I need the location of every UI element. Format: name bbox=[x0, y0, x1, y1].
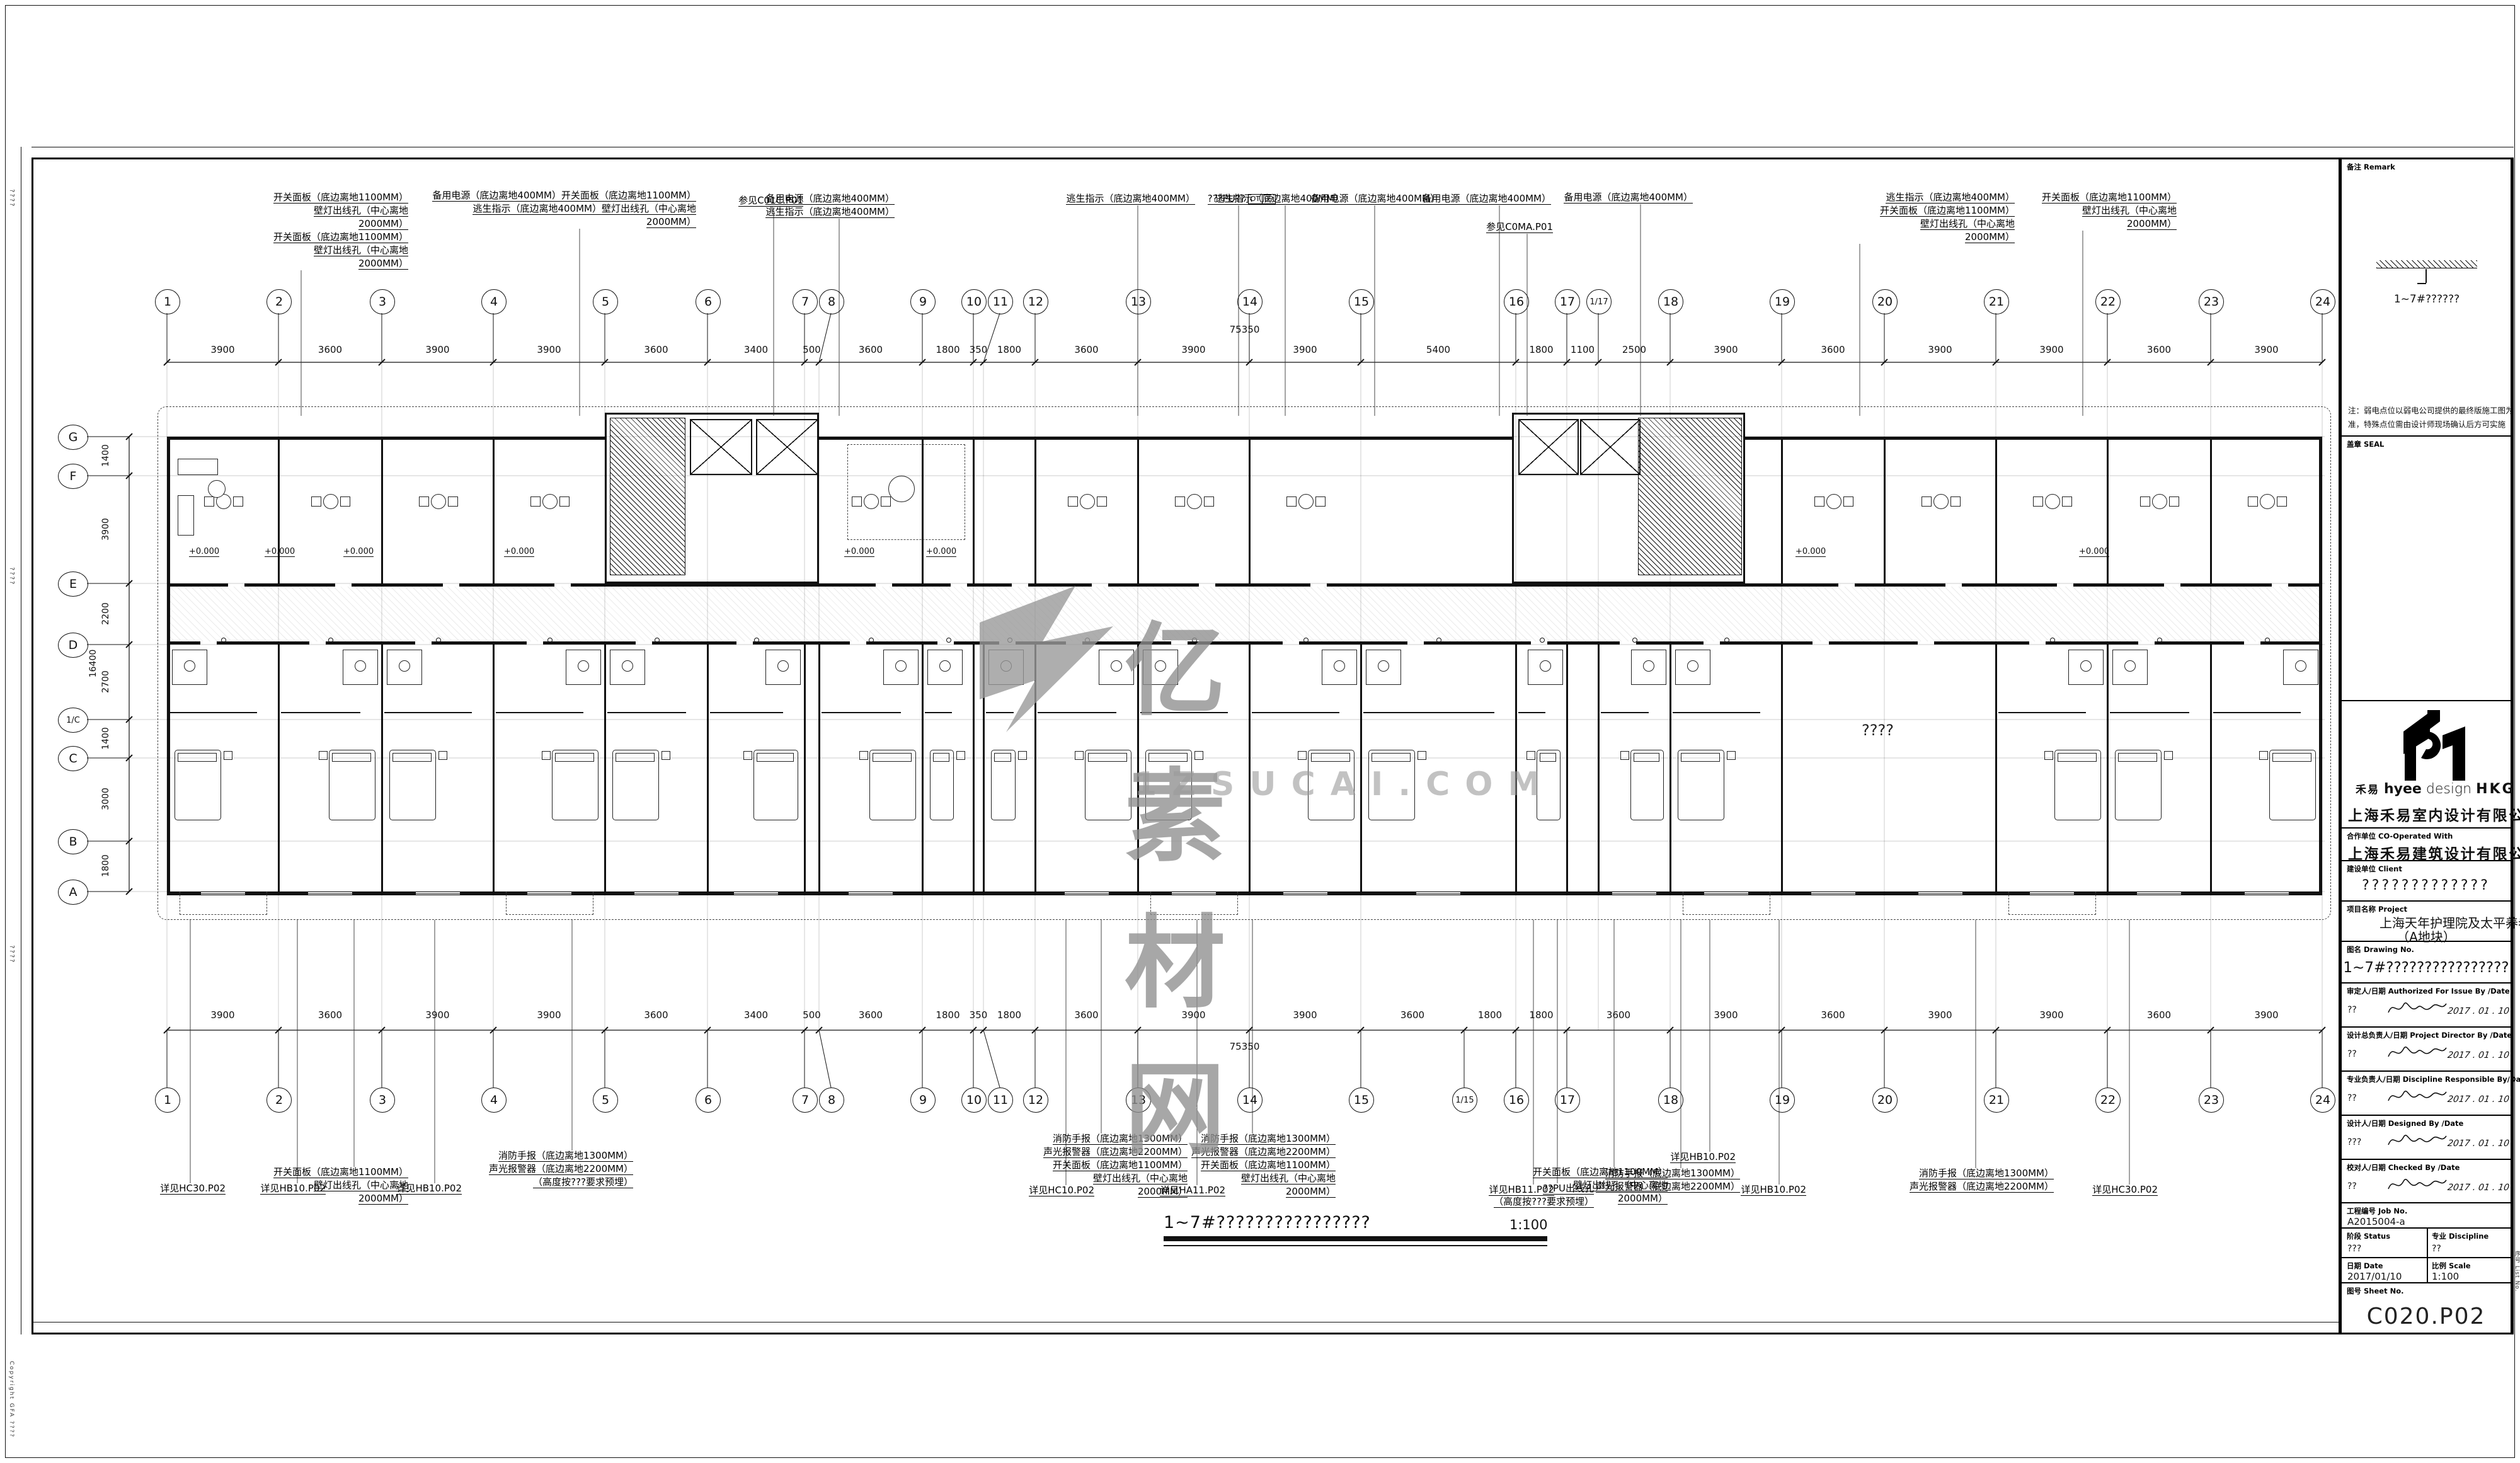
grid-bubble-top: 6 bbox=[696, 289, 721, 314]
brand-cn: 禾易 bbox=[2356, 784, 2380, 796]
wall-segment bbox=[1035, 641, 1066, 645]
pillow-symbol bbox=[616, 753, 655, 762]
perimeter-wall-bottom bbox=[167, 892, 2322, 895]
nightstand-symbol bbox=[319, 751, 328, 760]
callout: 详见HC30.P02 bbox=[1805, 1183, 2158, 1196]
bathroom-wall bbox=[925, 712, 952, 713]
unit-partition-wall bbox=[278, 645, 280, 892]
callout-line: 详见HB10.P02 bbox=[1383, 1150, 1736, 1164]
device-symbol bbox=[869, 638, 874, 643]
chair-symbol bbox=[1204, 496, 1214, 507]
grid-bubble-top: 24 bbox=[2310, 289, 2335, 314]
drawing-title-text: 1~7#???????????????? bbox=[1164, 1213, 1371, 1232]
dimension-label: 2700 bbox=[101, 653, 111, 710]
wall-segment bbox=[1720, 641, 1782, 645]
status-discipline-divider bbox=[2427, 1229, 2428, 1257]
chair-symbol bbox=[2033, 496, 2043, 507]
brand-section: 禾易 hyee design HKG 上海禾易室内设计有限公司 bbox=[2342, 700, 2511, 827]
chair-symbol bbox=[1097, 496, 1107, 507]
remark-note-line2: 准，特殊点位需由设计师现场确认后方可实施 bbox=[2348, 418, 2506, 430]
overall-dimension-left: 16400 bbox=[88, 626, 98, 701]
unit-partition-wall bbox=[1598, 645, 1600, 892]
remark-symbol-label: 1~7#?????? bbox=[2367, 293, 2487, 306]
chair-symbol bbox=[2140, 496, 2150, 507]
grid-bubble-left: F bbox=[58, 464, 88, 489]
bed-symbol bbox=[552, 750, 598, 820]
wall-segment bbox=[2107, 641, 2138, 645]
dimension-label: 3900 bbox=[1698, 344, 1755, 355]
bed-symbol bbox=[2269, 750, 2316, 820]
pillow-symbol bbox=[178, 753, 217, 762]
chair-symbol bbox=[340, 496, 350, 507]
dimension-label: 5400 bbox=[1410, 344, 1467, 355]
grid-bubble-bottom: 19 bbox=[1770, 1087, 1795, 1113]
toilet-symbol bbox=[2295, 660, 2306, 672]
grid-bubble-left: G bbox=[58, 425, 88, 450]
level-marker: +0.000 bbox=[265, 547, 295, 557]
unit-partition-wall bbox=[1566, 645, 1568, 892]
wall-segment bbox=[1516, 583, 1567, 587]
callout: 开关面板（底边离地1100MM）壁灯出线孔（中心离地2000MM） bbox=[1824, 191, 2177, 231]
bathroom-symbol bbox=[988, 650, 1024, 685]
bathroom-wall bbox=[169, 712, 257, 713]
toilet-symbol bbox=[777, 660, 789, 672]
unit-partition-wall bbox=[604, 645, 606, 892]
dimension-label: 3600 bbox=[302, 1009, 358, 1021]
brand-en: hyee bbox=[2384, 781, 2422, 797]
wall-segment bbox=[1829, 641, 1884, 645]
wall-segment bbox=[2211, 583, 2272, 587]
pillow-symbol bbox=[2118, 753, 2157, 762]
wall-segment bbox=[571, 583, 605, 587]
brand-suffix: HKG bbox=[2476, 781, 2516, 797]
signer-label: 设计总负责人/日期 Project Director By /Date bbox=[2347, 1030, 2512, 1040]
stair-hatch bbox=[610, 418, 685, 575]
nightstand-symbol bbox=[1018, 751, 1027, 760]
unit-partition-wall bbox=[1249, 645, 1251, 892]
bathroom-symbol bbox=[1099, 650, 1134, 685]
device-symbol bbox=[547, 638, 553, 643]
unit-partition-wall bbox=[983, 645, 985, 892]
unit-partition-wall bbox=[2210, 645, 2212, 892]
pillow-symbol bbox=[994, 753, 1011, 762]
grid-bubble-bottom: 6 bbox=[696, 1087, 721, 1113]
bathroom-wall bbox=[1140, 712, 1228, 713]
nightstand-symbol bbox=[661, 751, 670, 760]
dimension-label: 3900 bbox=[1277, 344, 1334, 355]
remark-label: 备注 Remark bbox=[2347, 162, 2395, 172]
device-symbol bbox=[328, 638, 333, 643]
grid-bubble-top: 19 bbox=[1770, 289, 1795, 314]
device-symbol bbox=[2157, 638, 2162, 643]
callout-line: 声光报警器（底边离地2200MM） bbox=[983, 1145, 1336, 1159]
bathroom-symbol bbox=[610, 650, 645, 685]
sofa-symbol bbox=[178, 459, 218, 475]
toilet-symbol bbox=[1334, 660, 1345, 672]
round-table-symbol bbox=[888, 476, 915, 502]
grid-bubble-left: B bbox=[58, 829, 88, 854]
wall-segment bbox=[1598, 641, 1620, 645]
grid-bubble-top: 4 bbox=[481, 289, 507, 314]
elevator-shaft bbox=[756, 419, 818, 475]
wall-segment bbox=[352, 583, 382, 587]
toilet-symbol bbox=[355, 660, 366, 672]
dimension-label: 3900 bbox=[2238, 344, 2295, 355]
unit-partition-wall bbox=[1249, 437, 1251, 583]
wall-segment bbox=[543, 641, 605, 645]
signer-label: 审定人/日期 Authorized For Issue By /Date bbox=[2347, 986, 2510, 996]
bed-symbol bbox=[930, 750, 954, 820]
signature-icon bbox=[2386, 1086, 2449, 1108]
frame-bottom-thin-line bbox=[31, 1322, 2514, 1322]
table-symbol bbox=[208, 480, 226, 498]
wall-segment bbox=[1108, 583, 1138, 587]
chair-symbol bbox=[1068, 496, 1078, 507]
dimension-label: 1800 bbox=[101, 837, 111, 894]
wall-segment bbox=[1327, 583, 1361, 587]
sheet-no-section: 图号 Sheet No. C020.P02 bbox=[2342, 1282, 2511, 1336]
grid-bubble-top: 14 bbox=[1237, 289, 1263, 314]
title-underline-thin bbox=[1164, 1245, 1547, 1246]
window-midline bbox=[1283, 893, 1327, 894]
bed-symbol bbox=[1368, 750, 1415, 820]
wall-segment bbox=[983, 641, 999, 645]
pillow-symbol bbox=[873, 753, 912, 762]
chair-symbol bbox=[2248, 496, 2258, 507]
wall-segment bbox=[459, 583, 493, 587]
toilet-symbol bbox=[895, 660, 907, 672]
bathroom-wall bbox=[1363, 712, 1494, 713]
callout-line: 消防手报（底边离地1300MM） bbox=[280, 1149, 633, 1162]
grid-bubble-bottom: 13 bbox=[1126, 1087, 1151, 1113]
job-no-label: 工程编号 Job No. bbox=[2347, 1206, 2407, 1216]
wall-segment bbox=[2046, 641, 2107, 645]
drawing-title-scale: 1:100 bbox=[1509, 1217, 1548, 1232]
wall-segment bbox=[2211, 641, 2244, 645]
table-symbol bbox=[2152, 494, 2167, 509]
signer-row: 设计总负责人/日期 Project Director By /Date??201… bbox=[2342, 1026, 2511, 1070]
scale-value: 1:100 bbox=[2432, 1271, 2459, 1282]
remark-symbol-stem bbox=[2425, 269, 2427, 283]
window-symbol bbox=[2137, 892, 2181, 895]
bed-symbol bbox=[991, 750, 1016, 820]
grid-bubble-bottom: 12 bbox=[1023, 1087, 1048, 1113]
list-no-label: 序号 List No. bbox=[2513, 1251, 2520, 1292]
wall-segment bbox=[1249, 641, 1283, 645]
window-symbol bbox=[634, 892, 679, 895]
dimension-label: 3600 bbox=[842, 344, 899, 355]
bathroom-wall bbox=[607, 712, 686, 713]
grid-bubble-top: 12 bbox=[1023, 289, 1048, 314]
unit-partition-wall bbox=[1137, 437, 1139, 583]
device-symbol bbox=[1085, 638, 1090, 643]
signature-icon bbox=[2386, 1130, 2449, 1152]
nightstand-symbol bbox=[1194, 751, 1203, 760]
window-symbol bbox=[308, 892, 352, 895]
wall-segment bbox=[1598, 583, 1670, 587]
callout: 备用电源（底边离地400MM） bbox=[1340, 191, 1693, 204]
wall-segment bbox=[1516, 641, 1531, 645]
level-marker: +0.000 bbox=[189, 547, 219, 557]
wall-segment bbox=[2073, 583, 2107, 587]
grid-bubble-left: 1/C bbox=[58, 708, 88, 733]
brand-mid: design bbox=[2426, 781, 2471, 797]
balcony-outline bbox=[1150, 892, 1238, 915]
window-symbol bbox=[1065, 892, 1109, 895]
grid-bubble-bottom: 1/15 bbox=[1452, 1087, 1477, 1113]
toilet-symbol bbox=[1643, 660, 1654, 672]
wall-segment bbox=[1138, 641, 1171, 645]
grid-bubble-bottom: 22 bbox=[2095, 1087, 2121, 1113]
discipline-label: 专业 Discipline bbox=[2432, 1231, 2488, 1241]
window-midline bbox=[1918, 893, 1962, 894]
dimension-label: 3900 bbox=[2024, 1009, 2080, 1021]
bathroom-symbol bbox=[172, 650, 207, 685]
wall-segment bbox=[1670, 583, 1782, 587]
chair-symbol bbox=[311, 496, 321, 507]
bathroom-wall bbox=[986, 712, 1014, 713]
grid-bubble-top: 1/17 bbox=[1586, 289, 1612, 314]
device-symbol bbox=[655, 638, 660, 643]
dimension-label: 3600 bbox=[2131, 344, 2187, 355]
dimension-label: 3600 bbox=[842, 1009, 899, 1021]
pillow-symbol bbox=[1148, 753, 1188, 762]
pillow-symbol bbox=[555, 753, 594, 762]
grid-bubble-bottom: 2 bbox=[266, 1087, 292, 1113]
device-symbol bbox=[1724, 638, 1729, 643]
callout-line: 壁灯出线孔（中心离地 bbox=[1824, 204, 2177, 217]
dimension-label: 1400 bbox=[101, 427, 111, 484]
signer-name: ?? bbox=[2347, 1005, 2357, 1015]
elevator-shaft bbox=[690, 419, 752, 475]
dimension-label: 2200 bbox=[101, 585, 111, 642]
window-symbol bbox=[849, 892, 893, 895]
dimension-label: 3400 bbox=[728, 344, 784, 355]
dimension-label: 1400 bbox=[101, 710, 111, 767]
toilet-symbol bbox=[578, 660, 589, 672]
dimension-label: 3600 bbox=[628, 344, 685, 355]
chair-symbol bbox=[1921, 496, 1932, 507]
callout-line: 壁灯出线孔（中心离地 bbox=[55, 244, 408, 257]
dimension-label: 3900 bbox=[1912, 344, 1969, 355]
chair-symbol bbox=[2277, 496, 2287, 507]
unit-partition-wall bbox=[973, 437, 975, 583]
window-midline bbox=[1612, 893, 1656, 894]
pillow-symbol bbox=[332, 753, 371, 762]
dimension-label: 3600 bbox=[302, 344, 358, 355]
signer-label: 专业负责人/日期 Discipline Responsible By/Date bbox=[2347, 1074, 2520, 1084]
grid-bubble-top: 17 bbox=[1555, 289, 1580, 314]
wall-segment bbox=[819, 583, 876, 587]
unit-partition-wall bbox=[1034, 437, 1036, 583]
callout-line: 消防手报（底边离地1300MM） bbox=[1701, 1167, 2054, 1180]
toilet-symbol bbox=[184, 660, 195, 672]
window-midline bbox=[1065, 893, 1109, 894]
bathroom-symbol bbox=[1675, 650, 1710, 685]
dimension-label: 3900 bbox=[1277, 1009, 1334, 1021]
wall-segment bbox=[382, 583, 443, 587]
grid-bubble-top: 15 bbox=[1349, 289, 1374, 314]
window-midline bbox=[849, 893, 893, 894]
table-symbol bbox=[1933, 494, 1949, 509]
callout-line: 开关面板（底边离地1100MM） bbox=[983, 1159, 1336, 1172]
bed-symbol bbox=[1537, 750, 1561, 820]
dimension-label: 1800 bbox=[981, 1009, 1038, 1021]
window-symbol bbox=[734, 892, 778, 895]
nightstand-symbol bbox=[2259, 751, 2268, 760]
signer-date: 2017 . 01 . 10 bbox=[2447, 1050, 2510, 1060]
wall-segment bbox=[1361, 641, 1407, 645]
bed-symbol bbox=[2054, 750, 2101, 820]
sofa-symbol bbox=[178, 495, 194, 536]
chair-symbol bbox=[448, 496, 458, 507]
chair-symbol bbox=[1814, 496, 1824, 507]
callout-line: 消防手报（底边离地1300MM） bbox=[983, 1132, 1336, 1145]
unit-partition-wall bbox=[381, 645, 383, 892]
dimension-label: 2500 bbox=[1606, 344, 1663, 355]
room-label: ???? bbox=[1862, 721, 1894, 739]
wall-segment bbox=[605, 583, 707, 587]
table-symbol bbox=[323, 494, 338, 509]
window-midline bbox=[2137, 893, 2181, 894]
wall-segment bbox=[244, 583, 278, 587]
nightstand-symbol bbox=[2044, 751, 2053, 760]
pillow-symbol bbox=[757, 753, 794, 762]
bathroom-symbol bbox=[1528, 650, 1563, 685]
wall-segment bbox=[167, 583, 228, 587]
grid-bubble-left: C bbox=[58, 746, 88, 771]
remark-symbol-foot bbox=[2417, 283, 2426, 284]
overall-dimension-top: 75350 bbox=[1207, 324, 1283, 335]
unit-partition-wall bbox=[2107, 437, 2109, 583]
signer-label: 校对人/日期 Checked By /Date bbox=[2347, 1162, 2460, 1173]
nightstand-symbol bbox=[1620, 751, 1629, 760]
window-symbol bbox=[1416, 892, 1460, 895]
wall-segment bbox=[2180, 583, 2211, 587]
dimension-label: 3900 bbox=[195, 1009, 251, 1021]
dimension-label: 3900 bbox=[1698, 1009, 1755, 1021]
unit-partition-wall bbox=[278, 437, 280, 583]
window-midline bbox=[634, 893, 679, 894]
bathroom-symbol bbox=[1366, 650, 1401, 685]
window-midline bbox=[734, 893, 778, 894]
drawing-no-value: 1~7#???????????????? bbox=[2342, 960, 2511, 976]
remark-section: 备注 Remark 1~7#?????? 注：弱电点位以弱电公司提供的最终版施工… bbox=[2342, 159, 2511, 435]
remark-note-line1: 注：弱电点位以弱电公司提供的最终版施工图为 bbox=[2348, 404, 2514, 416]
dimension-label: 3900 bbox=[2024, 344, 2080, 355]
grid-bubble-bottom: 15 bbox=[1349, 1087, 1374, 1113]
toilet-symbol bbox=[622, 660, 633, 672]
dimension-label: 1800 bbox=[1513, 1009, 1570, 1021]
date-scale-row: 日期 Date 2017/01/10 比例 Scale 1:100 bbox=[2342, 1257, 2511, 1282]
bathroom-wall bbox=[2110, 712, 2189, 713]
bathroom-wall bbox=[1518, 712, 1545, 713]
unit-partition-wall bbox=[493, 645, 495, 892]
sheet-no-value: C020.P02 bbox=[2342, 1304, 2511, 1329]
device-symbol bbox=[1007, 638, 1012, 643]
dimension-label: 3600 bbox=[1805, 1009, 1862, 1021]
nightstand-symbol bbox=[1526, 751, 1535, 760]
bed-symbol bbox=[753, 750, 798, 820]
wall-segment bbox=[2288, 583, 2322, 587]
wall-segment bbox=[1138, 583, 1199, 587]
wall-segment bbox=[493, 641, 527, 645]
grid-bubble-bottom: 9 bbox=[910, 1087, 936, 1113]
callout: 参见C0MA.P01 bbox=[1200, 221, 1553, 234]
unit-partition-wall bbox=[2107, 645, 2109, 892]
bathroom-wall bbox=[2213, 712, 2301, 713]
unit-partition-wall bbox=[1515, 645, 1517, 892]
bathroom-wall bbox=[1252, 712, 1339, 713]
level-marker: +0.000 bbox=[343, 547, 374, 557]
wall-segment bbox=[1028, 583, 1035, 587]
wall-segment bbox=[707, 641, 736, 645]
grid-bubble-top: 22 bbox=[2095, 289, 2121, 314]
chair-symbol bbox=[1843, 496, 1853, 507]
unit-partition-wall bbox=[1995, 645, 1997, 892]
wall-segment bbox=[1855, 583, 1884, 587]
table-symbol bbox=[2260, 494, 2275, 509]
pillow-symbol bbox=[1681, 753, 1720, 762]
margin-vertical-note: ???? bbox=[8, 567, 15, 585]
grid-bubble-bottom: 8 bbox=[819, 1087, 844, 1113]
callout-line: 逃生指示（底边离地400MM） bbox=[542, 205, 895, 219]
toilet-symbol bbox=[2124, 660, 2136, 672]
wall-segment bbox=[1567, 641, 1598, 645]
level-marker: +0.000 bbox=[1795, 547, 1826, 557]
grid-bubble-top: 20 bbox=[1872, 289, 1898, 314]
balcony-outline bbox=[506, 892, 593, 915]
callout-line: （高度按???要求预埋） bbox=[280, 1176, 633, 1189]
grid-bubble-bottom: 11 bbox=[988, 1087, 1013, 1113]
nightstand-symbol bbox=[1417, 751, 1426, 760]
unit-partition-wall bbox=[804, 645, 806, 892]
bathroom-wall bbox=[496, 712, 583, 713]
pillow-symbol bbox=[1372, 753, 1411, 762]
bed-symbol bbox=[612, 750, 659, 820]
coop-section: 合作单位 CO-Operated With 上海禾易建筑设计有限公司 bbox=[2342, 827, 2511, 860]
callout-line: 详见HC30.P02 bbox=[1805, 1183, 2158, 1196]
bed-symbol bbox=[2115, 750, 2162, 820]
project-section: 项目名称 Project 上海天年护理院及太平养老公寓项 （A地块） bbox=[2342, 900, 2511, 941]
window-midline bbox=[308, 893, 352, 894]
bathroom-symbol bbox=[566, 650, 601, 685]
status-discipline-row: 阶段 Status ??? 专业 Discipline ?? bbox=[2342, 1227, 2511, 1257]
table-symbol bbox=[1826, 494, 1841, 509]
chair-symbol bbox=[1950, 496, 1961, 507]
brand-logo-line: 禾易 hyee design HKG bbox=[2356, 781, 2516, 797]
callout: 备用电源（底边离地400MM）逃生指示（底边离地400MM） bbox=[542, 192, 895, 219]
date-value: 2017/01/10 bbox=[2347, 1271, 2402, 1282]
toilet-symbol bbox=[1378, 660, 1389, 672]
bathroom-wall bbox=[281, 712, 360, 713]
brand-company: 上海禾易室内设计有限公司 bbox=[2348, 803, 2520, 825]
grid-bubble-bottom: 4 bbox=[481, 1087, 507, 1113]
dimension-label: 500 bbox=[784, 1009, 840, 1021]
bed-symbol bbox=[1145, 750, 1192, 820]
signer-row: 专业负责人/日期 Discipline Responsible By/Date?… bbox=[2342, 1070, 2511, 1115]
wall-segment bbox=[1996, 583, 2057, 587]
bathroom-wall bbox=[1038, 712, 1116, 713]
grid-bubble-top: 16 bbox=[1504, 289, 1529, 314]
overall-dimension-bottom: 75350 bbox=[1207, 1041, 1283, 1052]
device-symbol bbox=[1303, 638, 1309, 643]
bed-symbol bbox=[175, 750, 221, 820]
grid-bubble-top: 21 bbox=[1984, 289, 2009, 314]
grid-bubble-top: 5 bbox=[593, 289, 618, 314]
grid-bubble-top: 10 bbox=[961, 289, 987, 314]
window-symbol bbox=[1811, 892, 1855, 895]
